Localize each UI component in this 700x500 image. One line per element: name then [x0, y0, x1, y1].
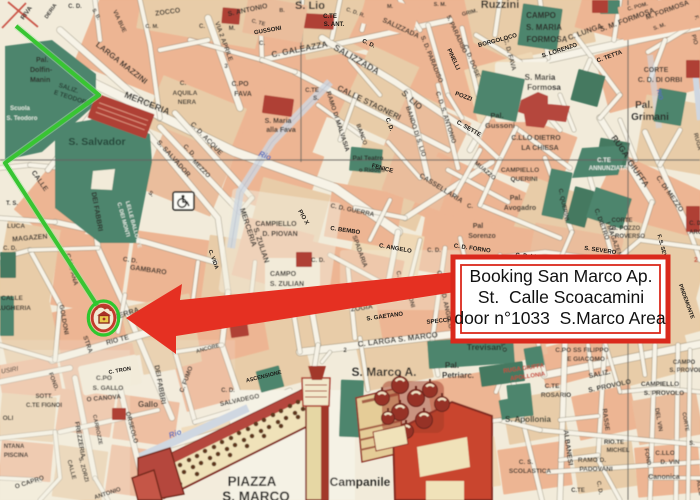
- svg-text:Booking San Marco Ap.: Booking San Marco Ap.: [470, 266, 653, 286]
- svg-text:door n°1033 S.Marco Area: door n°1033 S.Marco Area: [454, 308, 666, 328]
- svg-text:St. Calle Scoacamini: St. Calle Scoacamini: [478, 287, 644, 307]
- svg-text:C.TE: C.TE: [323, 14, 337, 20]
- svg-text:S. ANT.: S. ANT.: [324, 22, 345, 28]
